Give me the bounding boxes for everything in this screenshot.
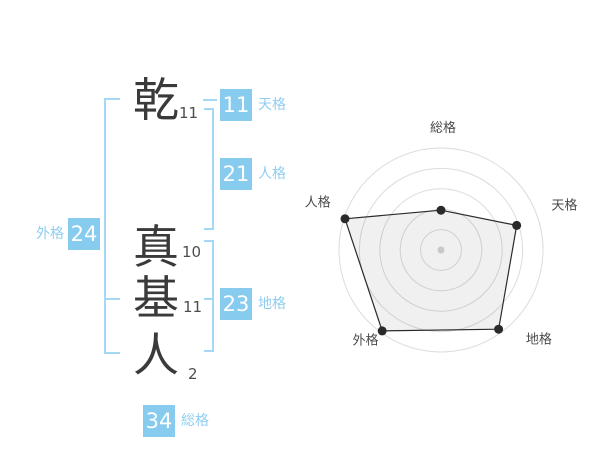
soukaku-badge: 34: [143, 405, 175, 437]
soukaku-value: 34: [146, 411, 173, 432]
gaikaku-bracket-tick-middle: [104, 298, 120, 300]
radar-axis-label: 天格: [551, 198, 577, 214]
radar-data-point: [378, 326, 387, 335]
tenkaku-bracket-tick: [203, 99, 217, 101]
chikaku-label: 地格: [258, 297, 286, 312]
given-name-char-1: 真: [130, 224, 182, 270]
chikaku-bracket-line: [212, 240, 214, 352]
radar-axis-label: 地格: [526, 331, 552, 347]
jinkaku-bracket-tick-top: [204, 108, 214, 110]
radar-data-point: [512, 221, 521, 230]
jinkaku-badge: 21: [220, 158, 252, 190]
jinkaku-label: 人格: [258, 167, 286, 182]
stroke-count-surname-1: 11: [179, 105, 198, 121]
stroke-count-given-name-1: 10: [182, 244, 201, 260]
radar-center-dot: [438, 247, 445, 254]
jinkaku-value: 21: [223, 164, 250, 185]
radar-axis-label: 人格: [305, 195, 331, 211]
tenkaku-value: 11: [223, 95, 250, 116]
surname-char-1: 乾: [130, 77, 182, 123]
radar-data-point: [437, 206, 446, 215]
gaikaku-label: 外格: [30, 227, 64, 242]
given-name-char-2: 基: [130, 275, 182, 321]
tenkaku-badge: 11: [220, 89, 252, 121]
radar-axis-label: 総格: [430, 120, 456, 136]
tenkaku-label: 天格: [258, 98, 286, 113]
chikaku-bracket-tick-top: [204, 240, 214, 242]
radar-axis-label: 外格: [352, 332, 378, 348]
jinkaku-bracket-tick-bottom: [204, 228, 214, 230]
fortune-radar-chart: 総格天格地格外格人格: [300, 100, 600, 380]
seimei-handan-panel: 乾 真 基 人 11 10 11 2 11 天格 21 人格 23 地格 外格 …: [0, 0, 600, 470]
soukaku-label: 総格: [181, 414, 209, 429]
jinkaku-bracket-line: [212, 108, 214, 230]
gaikaku-bracket-tick-top: [104, 98, 120, 100]
gaikaku-value: 24: [71, 224, 98, 245]
chikaku-bracket-tick-bottom: [204, 350, 214, 352]
chikaku-badge: 23: [220, 288, 252, 320]
radar-data-point: [341, 214, 350, 223]
chikaku-bracket-tick-middle: [204, 298, 214, 300]
radar-data-point: [494, 325, 503, 334]
radar-data-polygon: [345, 210, 517, 331]
chikaku-value: 23: [223, 294, 250, 315]
gaikaku-badge: 24: [68, 218, 100, 250]
stroke-count-given-name-3: 2: [188, 366, 198, 382]
given-name-char-3: 人: [130, 332, 182, 378]
stroke-count-given-name-2: 11: [183, 299, 202, 315]
gaikaku-bracket-line: [104, 98, 106, 354]
gaikaku-bracket-tick-bottom: [104, 352, 120, 354]
